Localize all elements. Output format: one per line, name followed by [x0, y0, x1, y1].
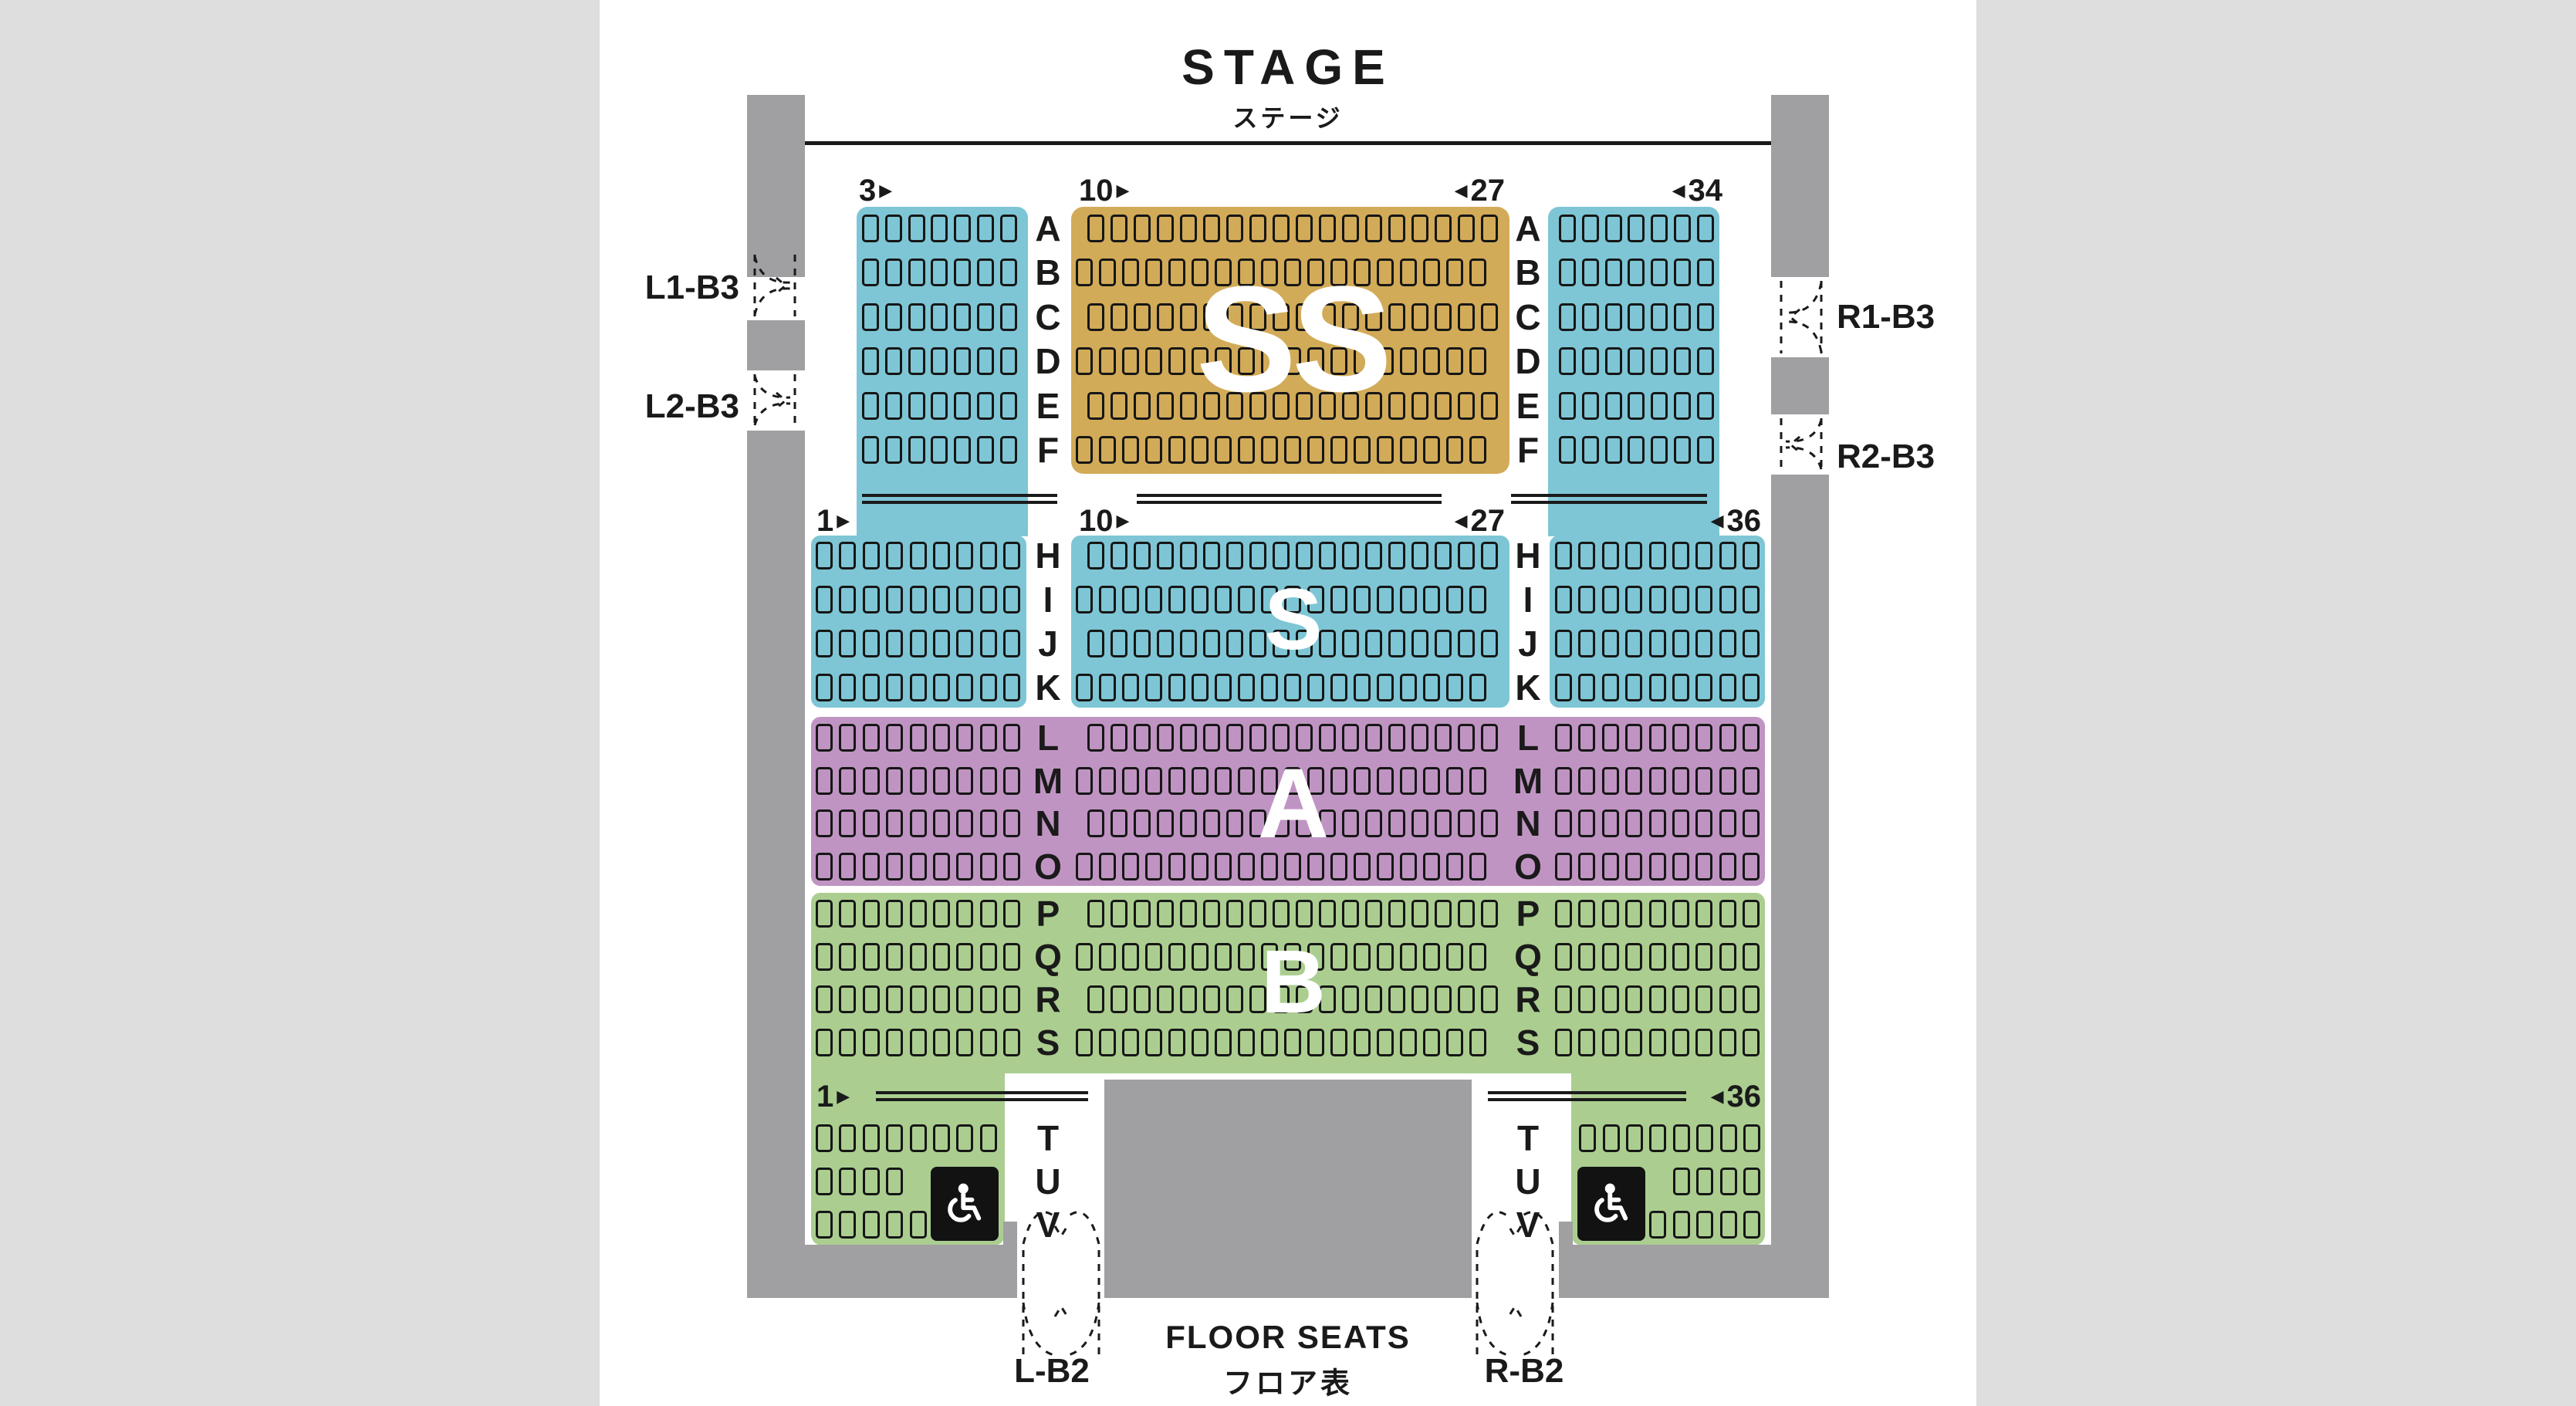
seat-number: 10: [1079, 505, 1114, 537]
seat-number: 27: [1471, 505, 1506, 537]
railing: [1511, 494, 1707, 504]
seat-number: 36: [1727, 1080, 1762, 1113]
aisle-marker: ◀36: [1708, 1080, 1761, 1113]
arrow-right-icon: ▶: [837, 505, 850, 537]
seat-number: 1: [816, 1080, 833, 1113]
arrow-left-icon: ◀: [1711, 1080, 1724, 1113]
seat-number: 1: [816, 505, 833, 537]
arrow-left-icon: ◀: [1672, 174, 1685, 207]
seat-number: 10: [1079, 174, 1114, 207]
aisle-marker: ◀34: [1669, 174, 1722, 207]
seat-number: 36: [1727, 505, 1762, 537]
aisle-marker: ◀27: [1452, 174, 1505, 207]
aisle-marker: ◀27: [1452, 505, 1505, 537]
aisle-marker: 1▶: [816, 505, 853, 537]
aisle-marker: 1▶: [816, 1080, 853, 1113]
railing: [876, 1091, 1088, 1101]
aisle-marker: 3▶: [859, 174, 895, 207]
railing: [1488, 1091, 1686, 1101]
door-swing-lines: [0, 0, 2576, 1406]
seat-number: 3: [859, 174, 876, 207]
arrow-right-icon: ▶: [837, 1080, 850, 1113]
seating-chart: AABBCCDDEEFFHHIIJJKKLLMMNNOOPPQQRRSSTTUU…: [0, 0, 2576, 1406]
arrow-right-icon: ▶: [1117, 505, 1130, 537]
arrow-right-icon: ▶: [879, 174, 892, 207]
arrow-right-icon: ▶: [1117, 174, 1130, 207]
arrow-left-icon: ◀: [1455, 174, 1468, 207]
arrow-left-icon: ◀: [1455, 505, 1468, 537]
seat-number: 27: [1471, 174, 1506, 207]
arrow-left-icon: ◀: [1711, 505, 1724, 537]
aisle-marker: 10▶: [1079, 505, 1132, 537]
seat-number: 34: [1689, 174, 1723, 207]
railing: [1137, 494, 1442, 504]
railing: [862, 494, 1057, 504]
aisle-marker: ◀36: [1708, 505, 1761, 537]
aisle-marker: 10▶: [1079, 174, 1132, 207]
